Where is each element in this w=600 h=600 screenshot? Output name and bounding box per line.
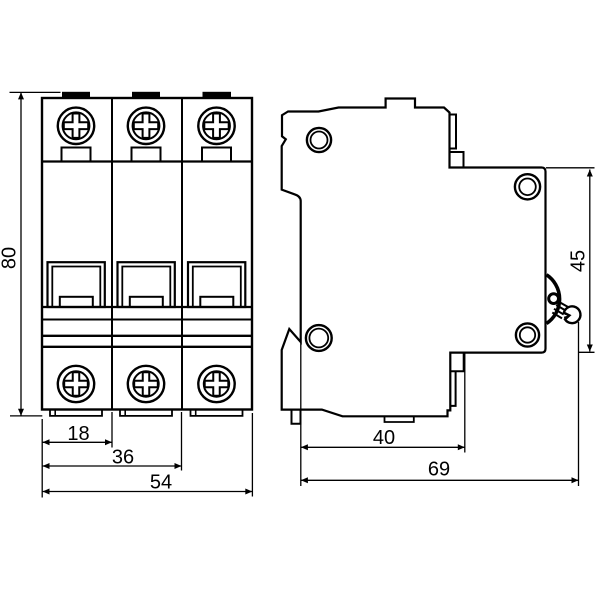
svg-text:40: 40	[373, 427, 395, 449]
svg-text:18: 18	[67, 423, 89, 445]
svg-text:54: 54	[150, 472, 172, 494]
svg-text:45: 45	[567, 250, 589, 272]
svg-text:69: 69	[428, 458, 450, 480]
svg-text:36: 36	[112, 447, 134, 469]
svg-text:80: 80	[0, 247, 21, 269]
